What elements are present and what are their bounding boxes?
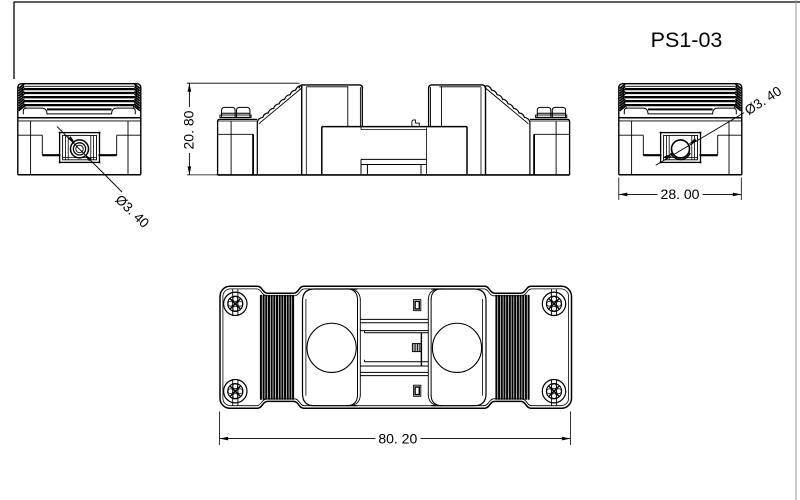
svg-text:PS1-03: PS1-03 [651,28,723,52]
svg-text:20. 80: 20. 80 [180,110,196,149]
svg-text:80. 20: 80. 20 [378,431,417,447]
svg-text:28. 00: 28. 00 [661,186,700,202]
